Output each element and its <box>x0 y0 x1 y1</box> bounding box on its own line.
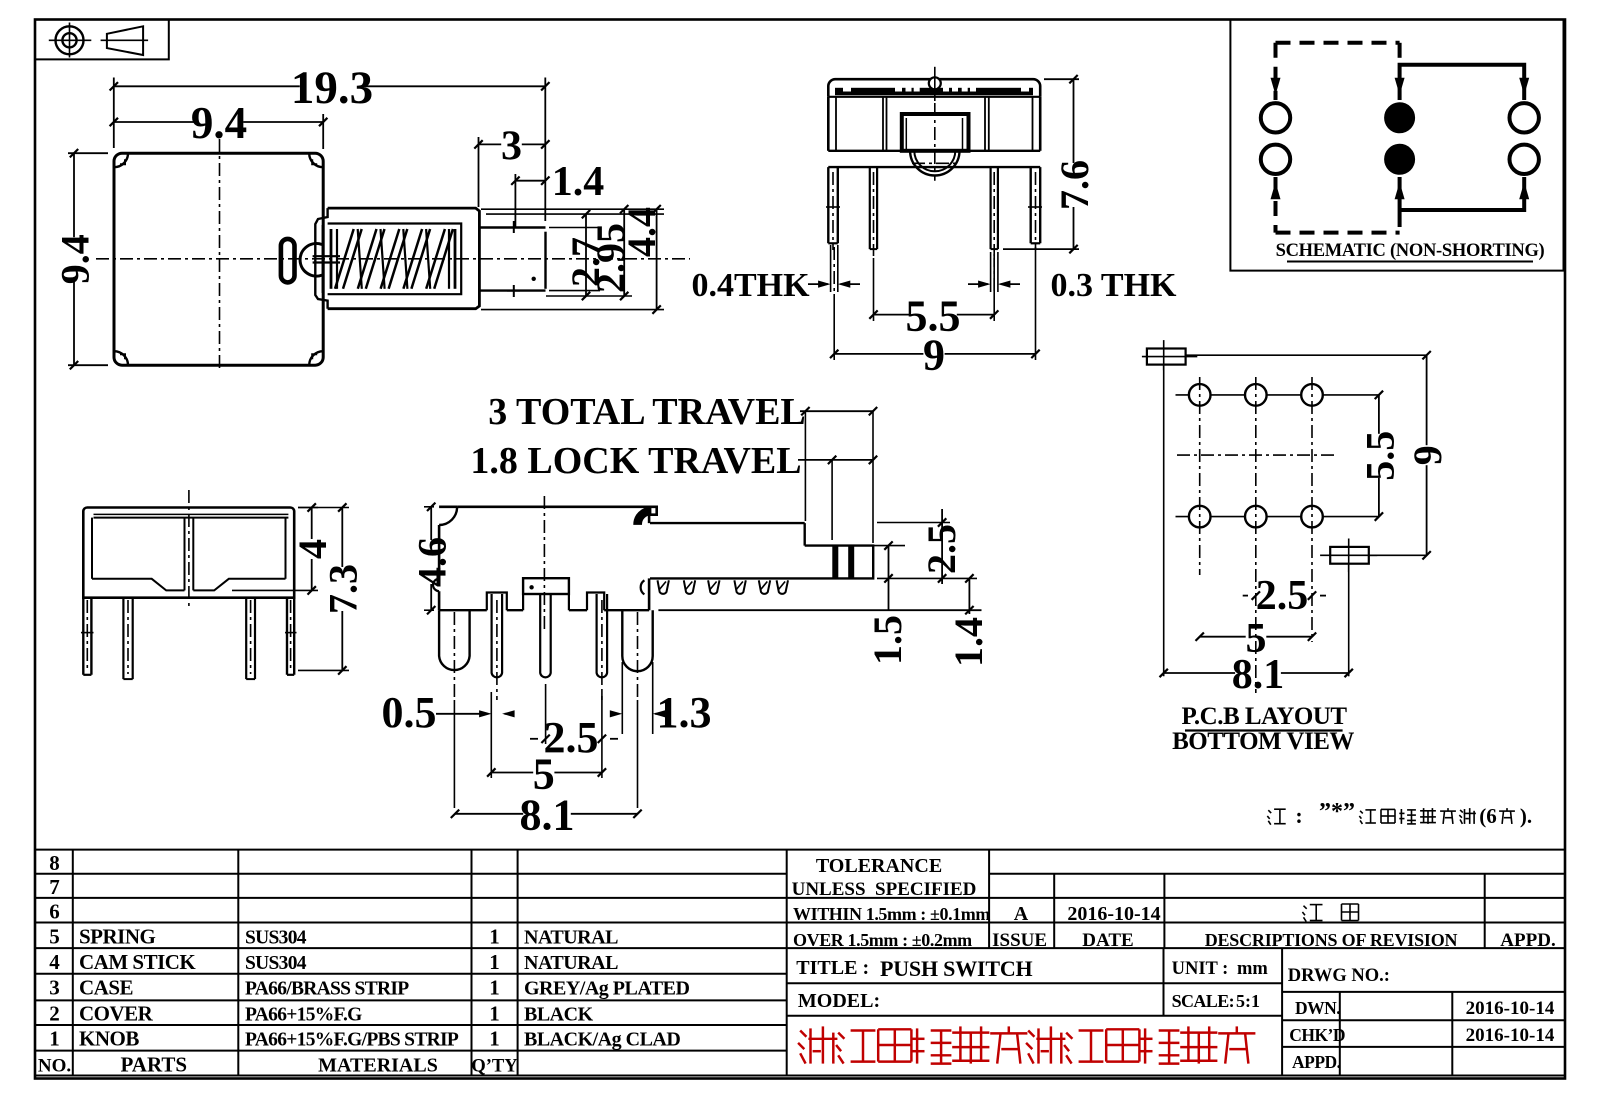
svg-text:NATURAL: NATURAL <box>524 952 618 974</box>
svg-text:3: 3 <box>49 976 60 1000</box>
svg-text:2016-10-14: 2016-10-14 <box>1466 998 1555 1019</box>
svg-text:SPRING: SPRING <box>79 925 156 949</box>
svg-text:4: 4 <box>49 950 60 974</box>
svg-text:UNIT :: UNIT : <box>1172 959 1229 979</box>
svg-text:CHK’D: CHK’D <box>1289 1025 1345 1045</box>
svg-text:Q’TY: Q’TY <box>471 1057 518 1077</box>
svg-text:P.C.B LAYOUT: P.C.B LAYOUT <box>1181 703 1347 730</box>
svg-text:SCALE:: SCALE: <box>1172 991 1234 1011</box>
svg-text:2.5: 2.5 <box>1256 573 1309 619</box>
svg-text:8.1: 8.1 <box>520 791 575 840</box>
svg-text:PA66+15%F.G: PA66+15%F.G <box>245 1005 362 1026</box>
svg-text:9: 9 <box>923 331 945 380</box>
svg-text:5:1: 5:1 <box>1236 991 1260 1011</box>
svg-text:7.6: 7.6 <box>1052 160 1097 210</box>
svg-text:CASE: CASE <box>79 976 133 1000</box>
svg-text:2016-10-14: 2016-10-14 <box>1067 903 1160 925</box>
svg-text:PA66/BRASS STRIP: PA66/BRASS STRIP <box>245 979 409 1000</box>
svg-text:DWN.: DWN. <box>1295 998 1340 1018</box>
svg-text:ISSUE: ISSUE <box>992 930 1047 951</box>
svg-text:mm: mm <box>1237 959 1268 979</box>
svg-text:8.1: 8.1 <box>1232 652 1285 698</box>
svg-text:PA66+15%F.G/PBS STRIP: PA66+15%F.G/PBS STRIP <box>245 1030 459 1051</box>
svg-text:4: 4 <box>290 539 335 559</box>
svg-text:0.3 THK: 0.3 THK <box>1051 267 1178 304</box>
svg-text:1: 1 <box>489 950 500 974</box>
svg-text:4.4: 4.4 <box>619 207 664 257</box>
svg-text:0.5: 0.5 <box>382 688 437 737</box>
svg-text:2: 2 <box>49 1002 60 1026</box>
svg-text:MODEL:: MODEL: <box>798 990 880 1012</box>
svg-text:GREY/Ag PLATED: GREY/Ag PLATED <box>524 978 689 1000</box>
svg-text:9.4: 9.4 <box>52 234 97 284</box>
svg-text:(6: (6 <box>1479 804 1497 828</box>
svg-text:COVER: COVER <box>79 1002 154 1026</box>
svg-text:).: ). <box>1520 804 1532 828</box>
svg-text:DESCRIPTIONS OF REVISION: DESCRIPTIONS OF REVISION <box>1205 930 1458 950</box>
svg-text:1: 1 <box>49 1027 60 1051</box>
svg-text:1: 1 <box>489 925 500 949</box>
svg-text:PUSH SWITCH: PUSH SWITCH <box>880 956 1033 981</box>
svg-text:4.6: 4.6 <box>410 537 455 587</box>
svg-text:DATE: DATE <box>1082 930 1133 951</box>
svg-text:KNOB: KNOB <box>79 1027 139 1051</box>
svg-text:CAM STICK: CAM STICK <box>79 950 196 974</box>
svg-text:1: 1 <box>489 976 500 1000</box>
svg-text:9.4: 9.4 <box>191 98 247 148</box>
svg-text:DRWG NO.:: DRWG NO.: <box>1288 966 1390 986</box>
svg-text:1.5: 1.5 <box>865 615 910 665</box>
svg-text:5.5: 5.5 <box>1357 431 1402 481</box>
svg-text:BLACK: BLACK <box>524 1004 594 1026</box>
svg-text:3: 3 <box>501 124 522 170</box>
svg-text:”*”: ”*” <box>1319 799 1355 825</box>
svg-text:TITLE :: TITLE : <box>796 957 869 979</box>
svg-text:0.4THK: 0.4THK <box>691 267 810 304</box>
svg-text:BOTTOM VIEW: BOTTOM VIEW <box>1172 728 1354 755</box>
svg-text:SUS304: SUS304 <box>245 953 307 974</box>
svg-text:9: 9 <box>1405 445 1450 465</box>
svg-text:1.8 LOCK TRAVEL: 1.8 LOCK TRAVEL <box>470 440 801 482</box>
svg-text:1.3: 1.3 <box>657 688 712 737</box>
svg-text:MATERIALS: MATERIALS <box>318 1055 438 1077</box>
svg-text:5: 5 <box>49 925 60 949</box>
svg-text:BLACK/Ag CLAD: BLACK/Ag CLAD <box>524 1029 680 1051</box>
svg-text:PARTS: PARTS <box>121 1053 188 1077</box>
svg-text:7: 7 <box>49 875 60 899</box>
svg-text:3 TOTAL TRAVEL: 3 TOTAL TRAVEL <box>488 391 806 433</box>
svg-text:SUS304: SUS304 <box>245 928 307 949</box>
svg-text:2.5: 2.5 <box>919 524 964 574</box>
svg-text:1.4: 1.4 <box>552 159 605 205</box>
svg-text:7.3: 7.3 <box>321 564 366 614</box>
svg-text:SCHEMATIC (NON-SHORTING): SCHEMATIC (NON-SHORTING) <box>1276 241 1545 261</box>
svg-text:APPD.: APPD. <box>1500 930 1555 951</box>
svg-text:NATURAL: NATURAL <box>524 927 618 949</box>
svg-text:2016-10-14: 2016-10-14 <box>1466 1025 1555 1046</box>
svg-text:OVER 1.5mm : ±0.2mm: OVER 1.5mm : ±0.2mm <box>793 930 972 950</box>
svg-text:1: 1 <box>489 1027 500 1051</box>
svg-text:1: 1 <box>489 1002 500 1026</box>
svg-text:UNLESS SPECIFIED: UNLESS SPECIFIED <box>792 879 977 900</box>
svg-text:19.3: 19.3 <box>291 62 373 114</box>
svg-text:6: 6 <box>49 900 60 924</box>
svg-text:1.4: 1.4 <box>946 617 991 667</box>
svg-text:NO.: NO. <box>38 1056 71 1077</box>
svg-text:A: A <box>1014 903 1029 925</box>
svg-text:TOLERANCE: TOLERANCE <box>816 855 942 877</box>
svg-text:WITHIN 1.5mm : ±0.1mm: WITHIN 1.5mm : ±0.1mm <box>793 904 990 924</box>
svg-text:8: 8 <box>49 851 60 875</box>
svg-text:APPD.: APPD. <box>1292 1052 1341 1072</box>
svg-text::: : <box>1295 803 1302 828</box>
